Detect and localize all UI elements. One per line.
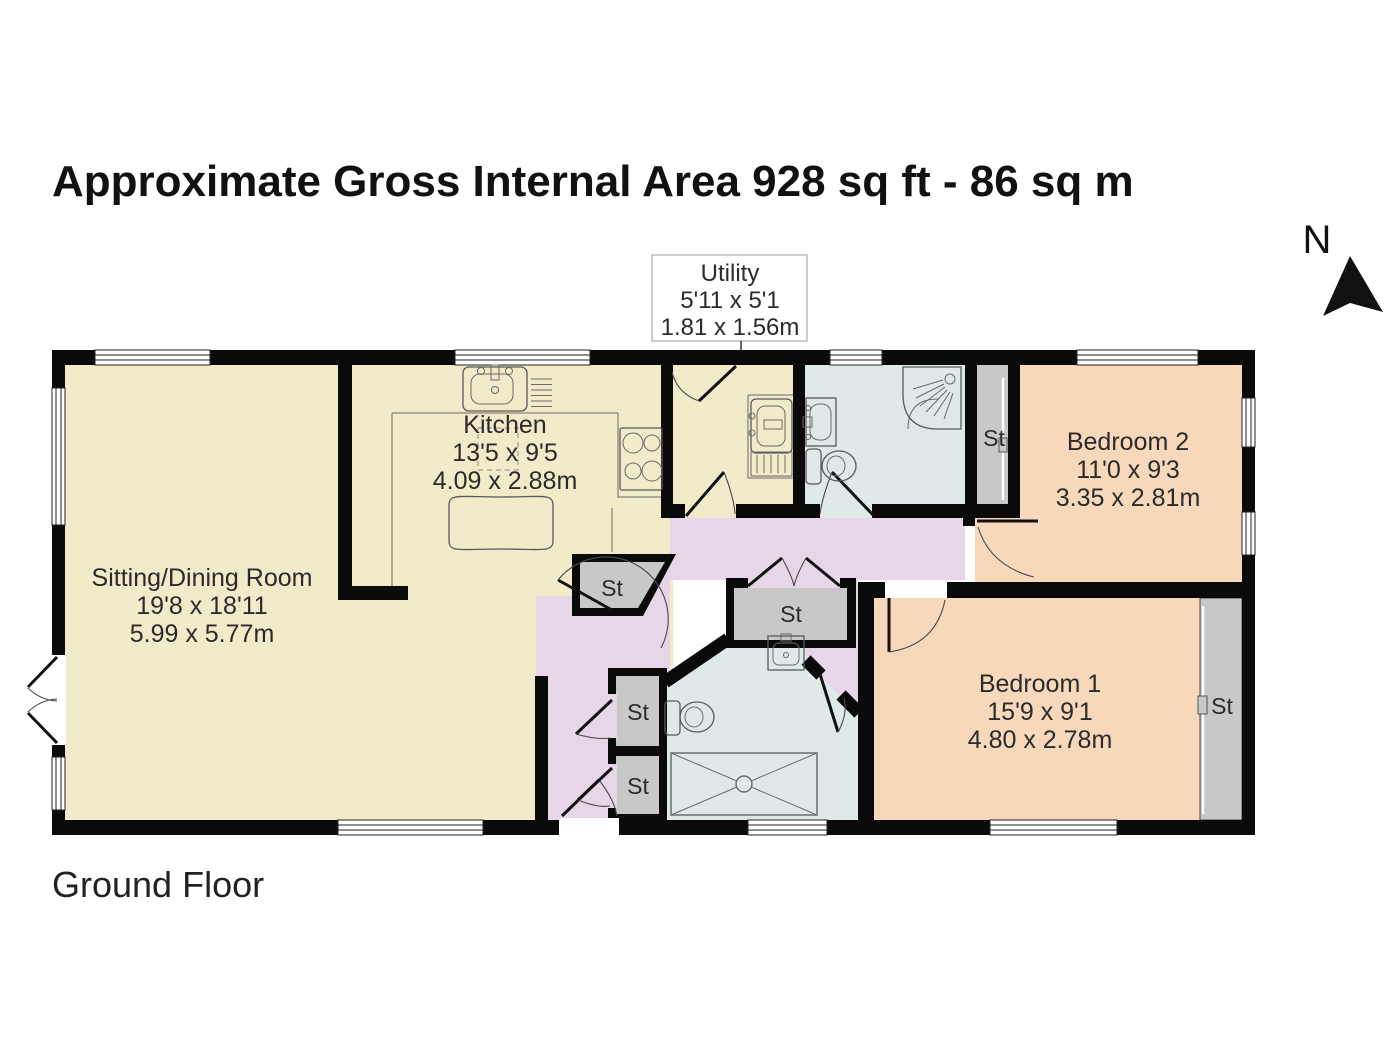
wall-bedroom2-door-jamb — [963, 514, 975, 526]
room-dims-metric: 5.99 x 5.77m — [130, 620, 275, 648]
storage-label: St — [1211, 693, 1233, 719]
wall-sitting-kitchen — [338, 365, 352, 600]
storage-label: St — [780, 601, 802, 627]
wall-bedroom-divider — [947, 582, 1242, 598]
window — [830, 350, 882, 365]
window — [95, 350, 210, 365]
north-arrow-icon — [1323, 256, 1383, 316]
storage-label: St — [601, 575, 623, 601]
room-name: Bedroom 1 — [979, 670, 1101, 698]
room-name: Bedroom 2 — [1067, 428, 1189, 456]
utility-callout-dims-metric: 1.81 x 1.56m — [661, 314, 800, 341]
label-bedroom1: Bedroom 1 15'9 x 9'1 4.80 x 2.78m — [968, 670, 1113, 754]
window — [748, 820, 827, 835]
window — [52, 388, 65, 525]
storage-label: St — [627, 773, 649, 799]
front-door-opening — [559, 818, 619, 837]
label-bedroom2: Bedroom 2 11'0 x 9'3 3.35 x 2.81m — [1056, 428, 1201, 512]
wall-utility-bottom — [661, 504, 685, 518]
wall-hall-left — [535, 676, 548, 820]
window — [1242, 398, 1255, 447]
window — [338, 820, 483, 835]
window — [990, 820, 1117, 835]
wall-utility-bottom — [736, 504, 820, 518]
storage-label: St — [627, 699, 649, 725]
closet-d-opening — [748, 578, 840, 588]
wall-exterior-top — [52, 350, 1255, 365]
room-dims-metric: 4.80 x 2.78m — [968, 726, 1113, 754]
room-name: Kitchen — [463, 411, 546, 439]
room-dims-metric: 3.35 x 2.81m — [1056, 484, 1201, 512]
north-label: N — [1303, 218, 1332, 262]
closet-bed1-door-handle — [1198, 696, 1207, 714]
window — [1077, 350, 1198, 365]
north-compass-icon: N — [1303, 218, 1383, 316]
room-name: Sitting/Dining Room — [92, 564, 313, 592]
floorplan-page: Approximate Gross Internal Area 928 sq f… — [0, 0, 1400, 1050]
room-dims-imperial: 13'5 x 9'5 — [452, 439, 557, 467]
wall-utility-bathroom1 — [793, 365, 805, 518]
wall-utility-left — [661, 365, 673, 518]
room-dims-imperial: 19'8 x 18'11 — [136, 592, 267, 620]
window — [52, 757, 65, 810]
room-bathroom1-floor — [805, 365, 965, 518]
window — [455, 350, 590, 365]
wall-bedroom1-left — [858, 582, 874, 820]
window — [1242, 512, 1255, 555]
floor-label: Ground Floor — [52, 864, 264, 905]
wall-sitting-kitchen-return — [338, 586, 408, 600]
room-dims-imperial: 15'9 x 9'1 — [987, 698, 1092, 726]
utility-callout-name: Utility — [701, 260, 760, 287]
page-title: Approximate Gross Internal Area 928 sq f… — [52, 157, 1134, 206]
floorplan-drawing: Approximate Gross Internal Area 928 sq f… — [0, 0, 1400, 1050]
wall-bathroom1-bottom — [872, 504, 1018, 518]
room-dims-imperial: 11'0 x 9'3 — [1076, 456, 1180, 484]
room-dims-metric: 4.09 x 2.88m — [433, 467, 578, 495]
storage-label: St — [983, 425, 1005, 451]
utility-callout-dims-imperial: 5'11 x 5'1 — [680, 287, 779, 314]
